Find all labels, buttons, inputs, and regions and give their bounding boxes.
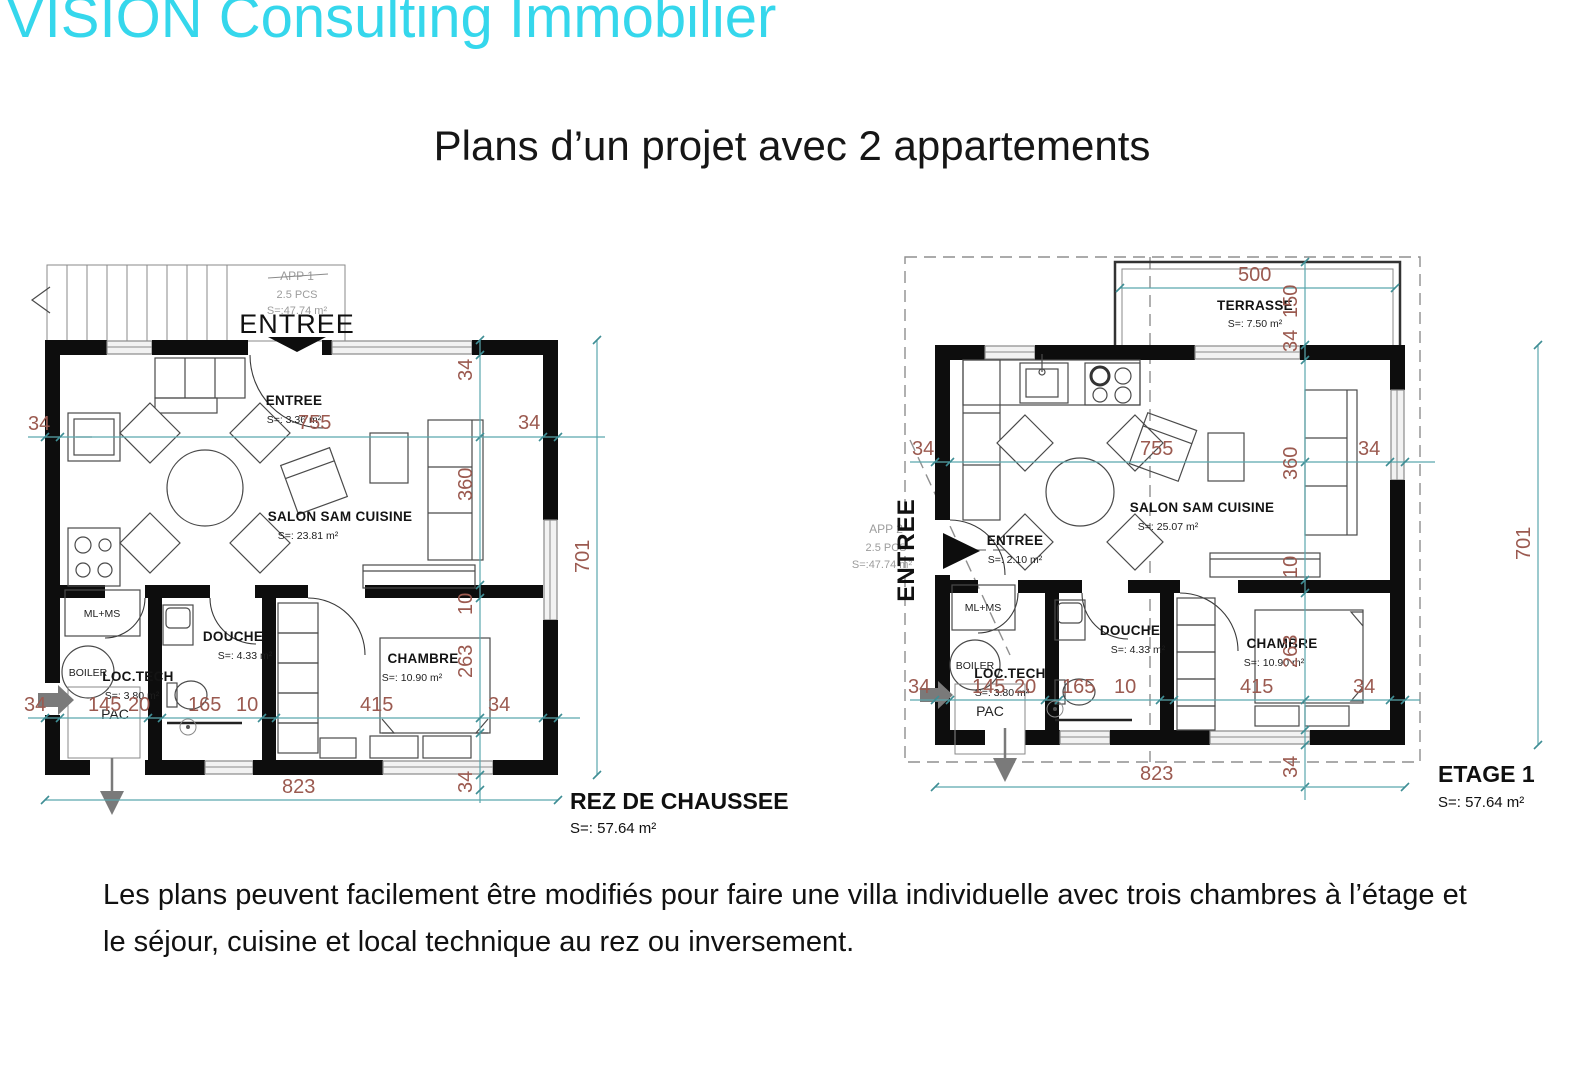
footer-line-1: Les plans peuvent facilement être modifi… (103, 872, 1503, 919)
footer-paragraph: Les plans peuvent facilement être modifi… (103, 872, 1503, 966)
sideboard (1210, 553, 1320, 577)
kitchen-counter (155, 358, 245, 413)
entrance-arrow-icon (943, 533, 980, 569)
entrance-label: ENTREE (239, 309, 355, 339)
armchair (281, 448, 348, 515)
stove (1085, 363, 1140, 405)
svg-text:S=: 2.10 m²: S=: 2.10 m² (988, 554, 1043, 566)
first-floor-plan: 500 TERRASSE S=: 7.50 m² (850, 250, 1584, 865)
svg-text:34: 34 (455, 359, 477, 381)
svg-text:755: 755 (1140, 438, 1173, 460)
svg-text:34: 34 (24, 694, 46, 716)
terrace: 500 TERRASSE S=: 7.50 m² (1115, 262, 1400, 348)
coffee-table (1208, 433, 1244, 481)
svg-text:701: 701 (1513, 527, 1535, 560)
footer-line-2: le séjour, cuisine et local technique au… (103, 919, 1503, 966)
closet-shelves (278, 603, 318, 753)
douche-label: DOUCHE (203, 629, 263, 644)
shower (163, 605, 193, 645)
salon-label: SALON SAM CUISINE (268, 509, 413, 524)
svg-text:ML+MS: ML+MS (965, 602, 1001, 614)
terrace-width: 500 (1238, 264, 1271, 286)
svg-text:34: 34 (488, 694, 510, 716)
svg-text:34: 34 (28, 413, 50, 435)
svg-text:34: 34 (908, 676, 930, 698)
svg-text:34: 34 (518, 412, 540, 434)
svg-text:145: 145 (88, 694, 121, 716)
stove (68, 528, 120, 586)
entree-label: ENTREE (266, 393, 323, 408)
svg-text:10: 10 (1280, 556, 1302, 578)
entree-label: ENTREE (987, 533, 1044, 548)
etage-plan-name: ETAGE 1 (1438, 761, 1535, 787)
svg-text:415: 415 (360, 694, 393, 716)
pac-label: PAC (976, 703, 1004, 719)
svg-text:145: 145 (972, 676, 1005, 698)
svg-text:165: 165 (188, 694, 221, 716)
apartment-pcs: 2.5 PCS (277, 289, 318, 301)
svg-text:10: 10 (1114, 676, 1136, 698)
svg-text:20: 20 (1014, 676, 1036, 698)
entrance-label: ENTREE (893, 498, 920, 601)
svg-text:263: 263 (1280, 635, 1302, 668)
svg-text:360: 360 (455, 468, 477, 501)
document-page: VISION Consulting Immobilier Plans d’un … (0, 0, 1584, 1082)
apartment-annotation: APP 2 2.5 PCS S=:47.74 m² ENTREE (852, 498, 920, 601)
svg-text:S=: 4.33 m²: S=: 4.33 m² (218, 650, 273, 662)
svg-text:S=: 25.07 m²: S=: 25.07 m² (1138, 521, 1199, 533)
svg-text:S=: 7.50 m²: S=: 7.50 m² (1228, 318, 1283, 330)
shower (1055, 600, 1085, 640)
svg-text:34: 34 (1353, 676, 1375, 698)
svg-text:S=: 4.33 m²: S=: 4.33 m² (1111, 644, 1166, 656)
brand-logo: VISION Consulting Immobilier (6, 0, 776, 51)
coffee-table (370, 433, 408, 483)
ground-plan-name: REZ DE CHAUSSEE (570, 788, 789, 814)
svg-text:10: 10 (455, 593, 477, 615)
svg-text:823: 823 (1140, 763, 1173, 785)
dining-table (120, 403, 290, 573)
entrance-arrow-icon (268, 337, 326, 352)
svg-text:34: 34 (455, 771, 477, 793)
svg-text:755: 755 (298, 412, 331, 434)
svg-text:701: 701 (572, 540, 594, 573)
svg-text:20: 20 (128, 694, 150, 716)
svg-text:ML+MS: ML+MS (84, 608, 120, 620)
sink (1020, 354, 1068, 403)
svg-text:165: 165 (1062, 676, 1095, 698)
chambre-label: CHAMBRE (387, 651, 458, 666)
ground-plan-area: S=: 57.64 m² (570, 820, 656, 837)
svg-text:823: 823 (282, 776, 315, 798)
svg-text:34: 34 (1280, 756, 1302, 778)
svg-text:150: 150 (1280, 285, 1302, 318)
svg-text:34: 34 (1358, 438, 1380, 460)
douche-label: DOUCHE (1100, 623, 1160, 638)
svg-text:S=: 10.90 m²: S=: 10.90 m² (382, 672, 443, 684)
svg-text:415: 415 (1240, 676, 1273, 698)
etage-plan-area: S=: 57.64 m² (1438, 794, 1524, 811)
apartment-annotation: APP 1 2.5 PCS S=:47.74 m² ENTREE (239, 269, 355, 352)
down-arrow-icon (100, 758, 124, 815)
page-title: Plans d’un projet avec 2 appartements (0, 122, 1584, 170)
svg-text:S=: 23.81 m²: S=: 23.81 m² (278, 530, 339, 542)
svg-text:360: 360 (1280, 447, 1302, 480)
down-arrow-icon (993, 728, 1017, 782)
ground-floor-plan: APP 1 2.5 PCS S=:47.74 m² ENTREE (20, 253, 820, 863)
salon-label: SALON SAM CUISINE (1130, 500, 1275, 515)
svg-text:34: 34 (912, 438, 934, 460)
doors (105, 355, 365, 655)
svg-text:34: 34 (1280, 330, 1302, 352)
sideboard (363, 565, 475, 588)
svg-text:263: 263 (455, 645, 477, 678)
svg-text:10: 10 (236, 694, 258, 716)
loctech-label: LOC.TECH (102, 669, 173, 684)
closet-shelves (1177, 598, 1215, 730)
